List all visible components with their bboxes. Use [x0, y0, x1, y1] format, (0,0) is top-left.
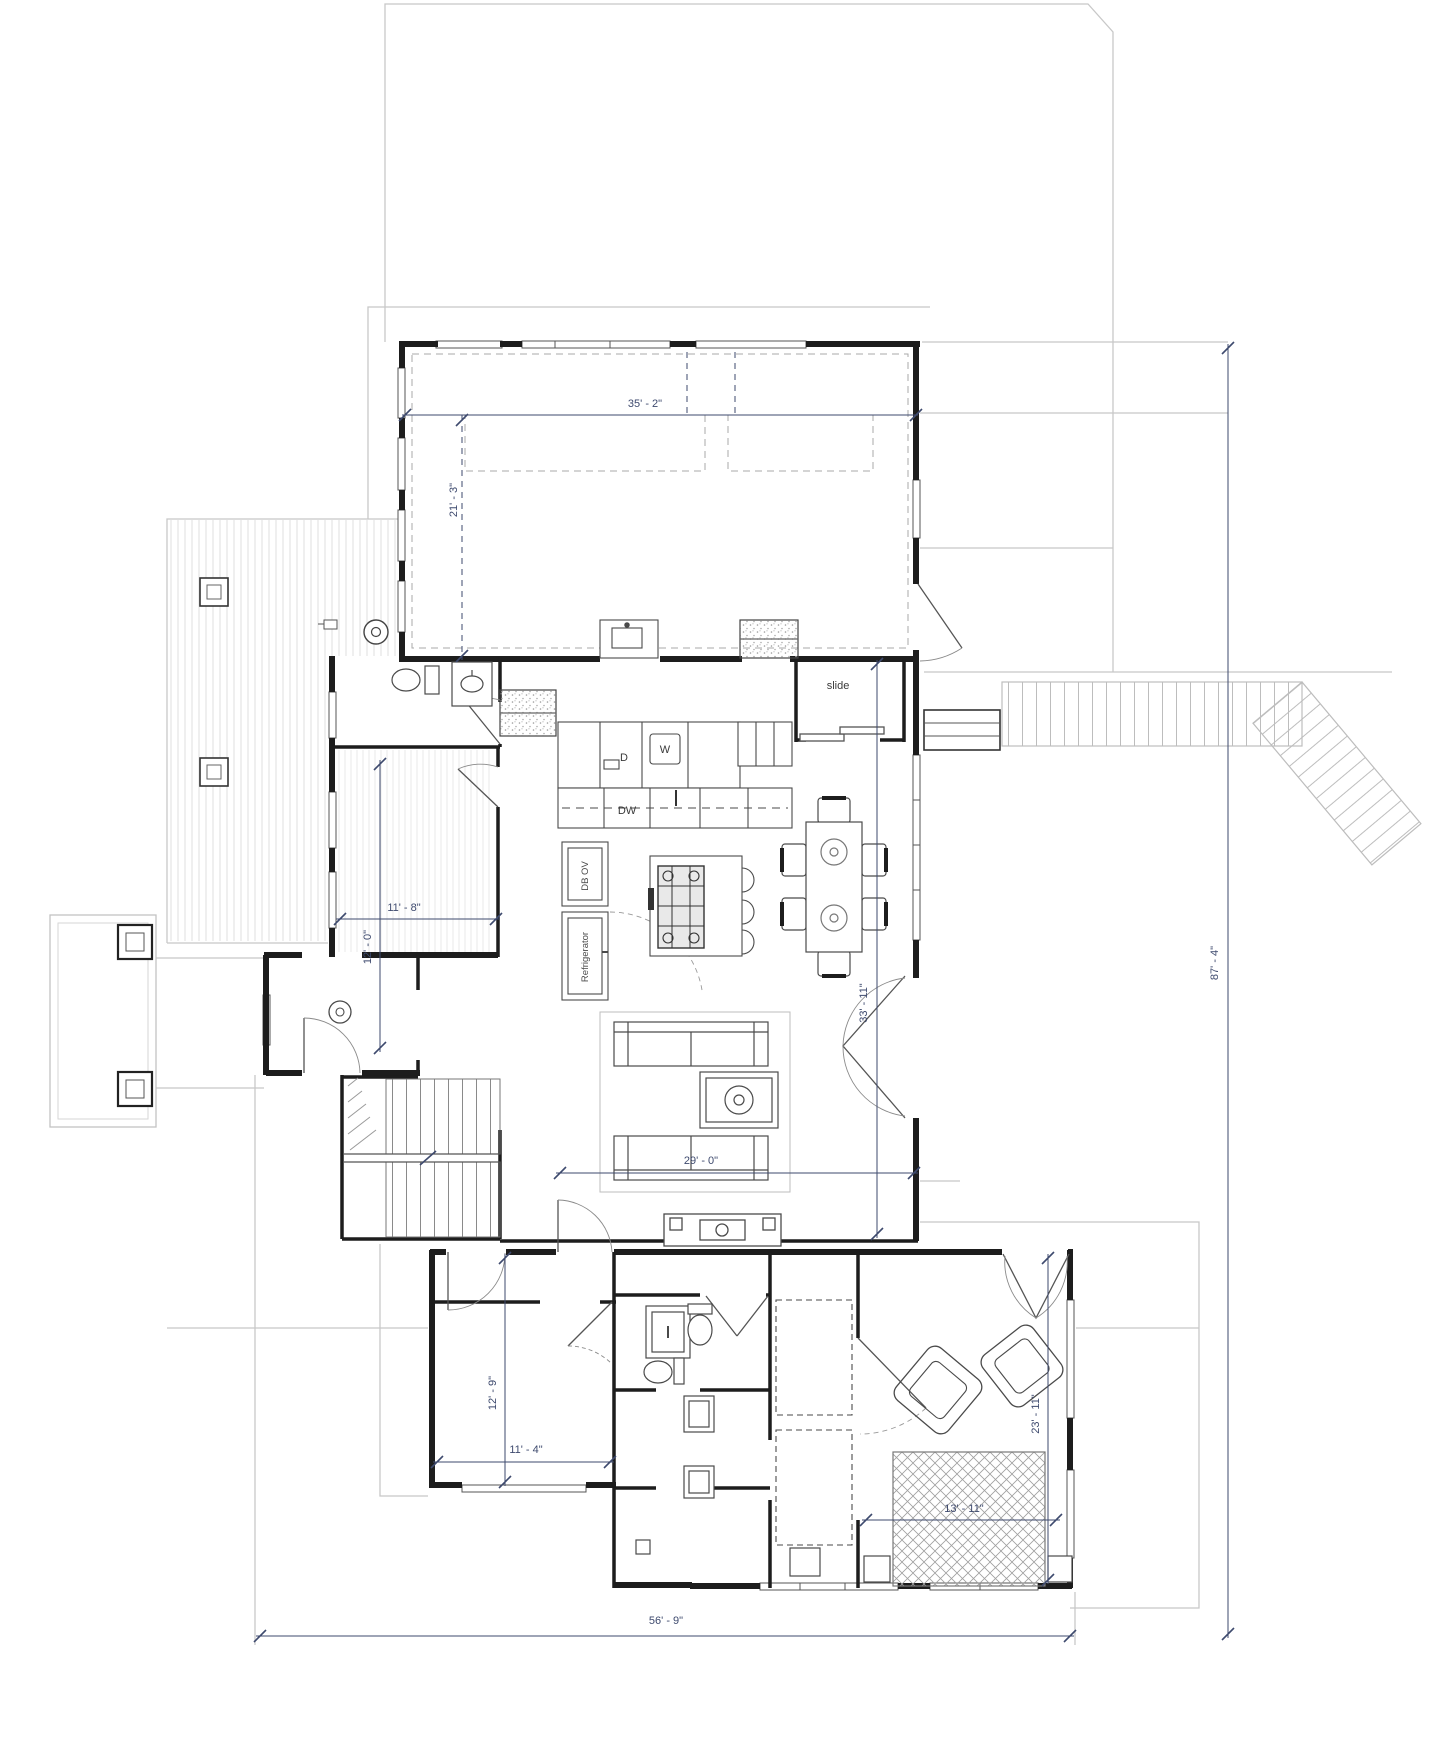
- dim-living-width: 29' - 0": [684, 1155, 718, 1167]
- dining-table: [806, 822, 862, 952]
- dining-chair: [782, 898, 806, 930]
- dim-bedroom-width: 11' - 4": [509, 1444, 542, 1456]
- pergola-post: [118, 1072, 152, 1106]
- dining-chair: [818, 798, 850, 823]
- dim-mudroom-depth: 12' - 0": [362, 930, 374, 964]
- dim-main-depth: 33' - 11": [858, 983, 870, 1023]
- hose-bib-symbol: [324, 620, 337, 629]
- dim-great-room-width: 35' - 2": [628, 398, 662, 410]
- dim-bedroom-depth: 12' - 9": [487, 1376, 499, 1410]
- dining-chair: [862, 898, 886, 930]
- label-double-oven: DB OV: [580, 861, 591, 891]
- master-rug: [893, 1452, 1045, 1586]
- toilet-tank: [425, 666, 439, 694]
- dim-overall-width: 56' - 9": [649, 1615, 683, 1627]
- pergola-post: [118, 925, 152, 959]
- coffee-table: [700, 1072, 778, 1128]
- floor-drain-symbol: [364, 620, 388, 644]
- dim-master-rug-width: 13' - 11": [944, 1503, 984, 1515]
- exterior-stair-ne: [924, 682, 1421, 865]
- dining-chair: [818, 951, 850, 976]
- dining-chair: [782, 844, 806, 876]
- toilet-tank: [688, 1304, 712, 1314]
- pergola: [50, 915, 156, 1127]
- dining-chair: [862, 844, 886, 876]
- dim-great-room-depth: 21' - 3": [448, 483, 460, 517]
- nightstand: [1048, 1556, 1072, 1582]
- label-slide: slide: [827, 680, 850, 692]
- floor-box: [636, 1540, 650, 1554]
- toilet: [688, 1315, 712, 1345]
- label-washer: W: [660, 744, 671, 756]
- deck-post: [200, 758, 228, 786]
- dim-overall-depth: 87' - 4": [1209, 946, 1221, 980]
- toilet: [644, 1361, 672, 1383]
- bench: [790, 1548, 820, 1576]
- deck-post: [200, 578, 228, 606]
- toilet-tank: [674, 1358, 684, 1384]
- label-dishwasher: DW: [618, 805, 637, 817]
- sofa: [614, 1022, 768, 1066]
- cooktop: [658, 866, 704, 948]
- sliding-door-panel: [800, 734, 844, 741]
- dim-master-depth: 23' - 11": [1030, 1394, 1042, 1434]
- label-dryer: D: [620, 752, 628, 764]
- floor-plan-svg: 35' - 2" 21' - 3" 12' - 0" 11' - 8" 33' …: [0, 0, 1445, 1748]
- fireplace: [664, 1214, 781, 1246]
- label-refrigerator: Refrigerator: [580, 932, 591, 982]
- nightstand: [864, 1556, 890, 1582]
- floor-plan-sheet: 35' - 2" 21' - 3" 12' - 0" 11' - 8" 33' …: [0, 0, 1445, 1748]
- toilet: [392, 669, 420, 691]
- dim-mudroom-width: 11' - 8": [387, 902, 420, 914]
